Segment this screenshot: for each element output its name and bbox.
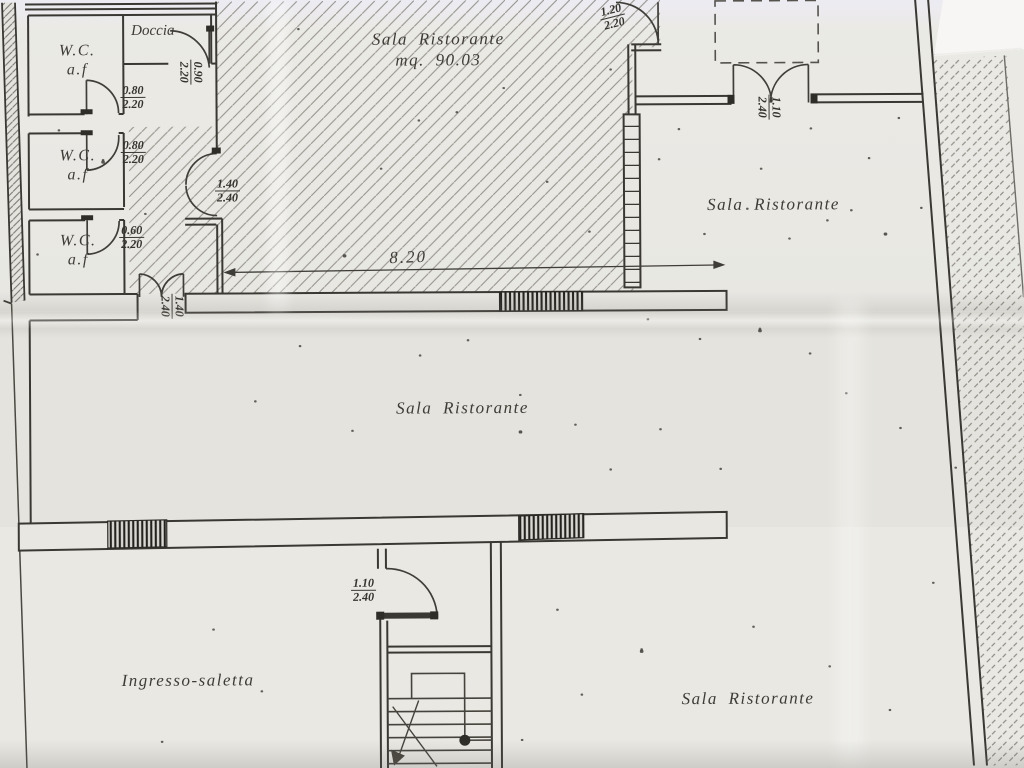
- wc3-label: W.C.: [60, 232, 97, 249]
- room-label-sala-bottom: Sala Ristorante: [682, 688, 815, 709]
- dim-doccia-width: 0.90: [191, 60, 205, 85]
- wc2-sublabel: a.f: [47, 166, 109, 184]
- sala-main-area: mq. 90.03: [348, 50, 528, 71]
- dim-wc3-height: 2.20: [119, 238, 144, 251]
- dim-middle-door-width: 1.40: [172, 294, 186, 319]
- dim-middle-door-height: 2.40: [159, 294, 172, 319]
- wc2-label: W.C.: [59, 147, 96, 164]
- room-label-sala-main: Sala Ristorante mq. 90.03: [348, 29, 528, 71]
- wc1-label: W.C.: [59, 42, 96, 59]
- left-exterior-wall: [2, 3, 27, 768]
- dim-corridor-width: 1.40: [215, 177, 240, 191]
- dim-wc3-width: 0.60: [119, 224, 144, 238]
- stair-post-dot: [459, 735, 470, 746]
- dim-right-door-width: 1.10: [769, 95, 783, 120]
- dim-wc2-door: 0.80 2.20: [121, 139, 146, 165]
- dim-wc1-door: 0.80 2.20: [120, 84, 145, 110]
- dim-total-width: 8.20: [389, 247, 428, 268]
- room-label-doccia: Doccia: [131, 23, 174, 40]
- room-label-wc2: W.C. a.f: [47, 147, 109, 184]
- dim-stair-door-width: 1.10: [351, 577, 376, 591]
- dim-right-door-height: 2.40: [756, 95, 769, 120]
- room-label-sala-middle: Sala Ristorante: [396, 398, 529, 419]
- plan-linework: [0, 0, 1024, 768]
- dim-corridor-door: 1.40 2.40: [215, 177, 240, 203]
- dim-wc1-width: 0.80: [120, 84, 145, 98]
- floor-plan: W.C. a.f Doccia W.C. a.f W.C. a.f Sala R…: [0, 0, 1024, 768]
- room-label-wc1: W.C. a.f: [46, 42, 108, 79]
- dim-corridor-height: 2.40: [215, 191, 240, 204]
- glass-block-partition: [624, 114, 641, 287]
- room-label-wc3: W.C. a.f: [47, 232, 109, 269]
- wc1-sublabel: a.f: [46, 61, 108, 79]
- dim-doccia-door: 0.90 2.20: [178, 60, 204, 85]
- wc3-sublabel: a.f: [47, 251, 109, 269]
- wall-middle-thick: [186, 291, 727, 313]
- staircase: [388, 673, 492, 767]
- dim-stair-door: 1.10 2.40: [351, 577, 376, 603]
- room-label-ingresso: Ingresso-saletta: [121, 670, 254, 691]
- wall-lower-thick: [19, 512, 727, 551]
- room-label-sala-right: Sala Ristorante: [707, 194, 840, 215]
- dim-doccia-height: 2.20: [178, 60, 191, 85]
- sala-main-label: Sala Ristorante: [372, 29, 505, 49]
- dim-wc2-height: 2.20: [121, 153, 146, 166]
- dashed-canopy: [715, 0, 818, 63]
- dim-wc3-door: 0.60 2.20: [119, 224, 144, 250]
- dim-wc2-width: 0.80: [121, 139, 146, 153]
- dim-wc1-height: 2.20: [120, 98, 145, 111]
- dim-stair-door-height: 2.40: [351, 590, 376, 603]
- dim-middle-door: 1.40 2.40: [159, 294, 185, 319]
- floor-plan-photo: W.C. a.f Doccia W.C. a.f W.C. a.f Sala R…: [0, 0, 1024, 768]
- dim-right-door: 1.10 2.40: [756, 95, 782, 120]
